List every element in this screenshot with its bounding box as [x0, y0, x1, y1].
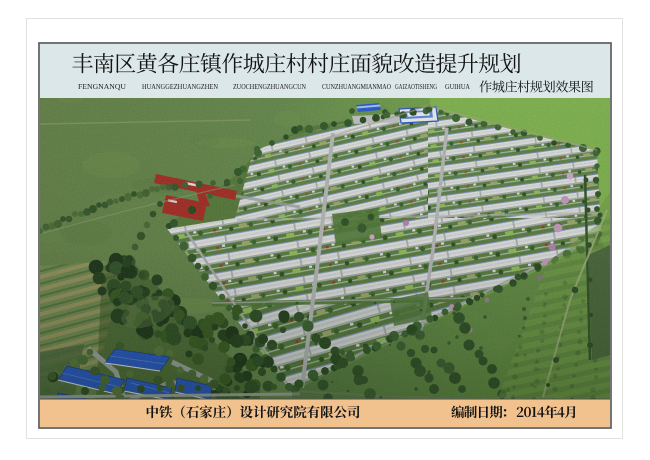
svg-text:GUIHUA: GUIHUA: [445, 82, 470, 91]
svg-text:CUNZHUANGMIANMAO: CUNZHUANGMIANMAO: [322, 82, 391, 91]
svg-text:ZUOCHENGZHUANGCUN: ZUOCHENGZHUANGCUN: [233, 82, 306, 91]
svg-text:FENGNANQU: FENGNANQU: [78, 82, 127, 91]
svg-text:GAIZAOTISHENG: GAIZAOTISHENG: [395, 82, 437, 91]
svg-text:HUANGGEZHUANGZHEN: HUANGGEZHUANGZHEN: [142, 82, 218, 91]
